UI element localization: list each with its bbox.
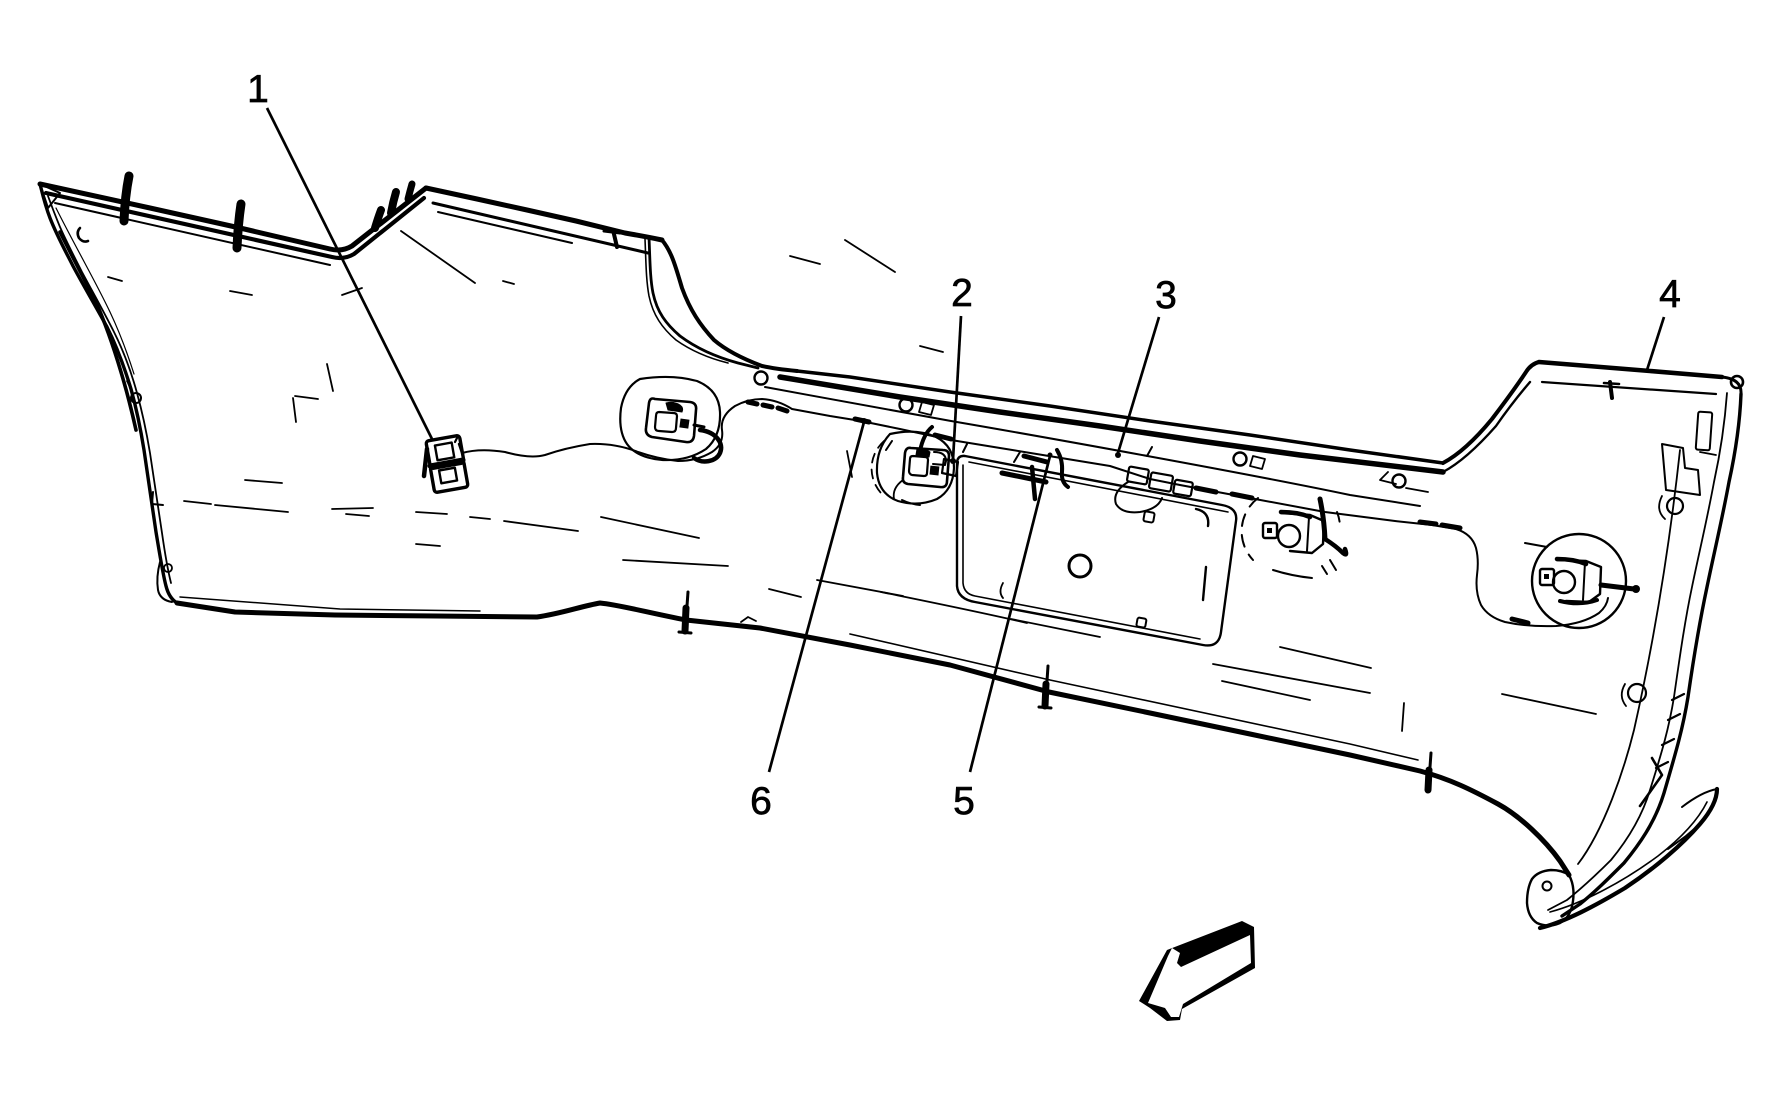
svg-text:2: 2 (951, 272, 973, 315)
svg-text:4: 4 (1659, 273, 1681, 316)
svg-text:5: 5 (953, 780, 975, 823)
svg-text:6: 6 (750, 780, 772, 823)
svg-text:1: 1 (247, 68, 269, 111)
svg-text:3: 3 (1155, 274, 1177, 317)
